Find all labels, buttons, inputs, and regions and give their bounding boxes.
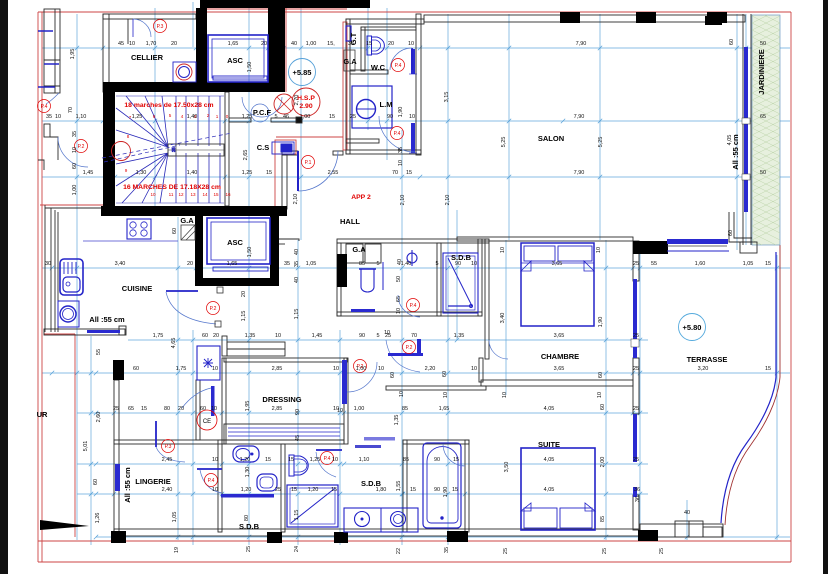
svg-text:2,85: 2,85 xyxy=(272,366,283,372)
svg-text:10: 10 xyxy=(384,330,390,336)
svg-text:90: 90 xyxy=(387,114,393,120)
svg-text:25: 25 xyxy=(246,546,252,552)
svg-text:22: 22 xyxy=(396,548,402,554)
svg-text:10: 10 xyxy=(72,147,78,153)
svg-text:15: 15 xyxy=(265,457,271,463)
svg-text:4,05: 4,05 xyxy=(544,406,555,412)
svg-text:1,30: 1,30 xyxy=(245,467,251,478)
svg-text:20: 20 xyxy=(178,406,184,412)
svg-text:2,45: 2,45 xyxy=(162,457,173,463)
svg-text:10: 10 xyxy=(332,457,338,463)
svg-text:2,00: 2,00 xyxy=(600,457,606,468)
svg-text:P.4: P.4 xyxy=(41,104,48,110)
svg-text:36: 36 xyxy=(635,496,641,502)
svg-text:60: 60 xyxy=(172,228,178,234)
svg-text:G.A: G.A xyxy=(343,57,357,66)
svg-text:4,05: 4,05 xyxy=(544,457,555,463)
svg-text:CE: CE xyxy=(203,419,211,425)
svg-text:10: 10 xyxy=(471,261,477,267)
svg-text:5: 5 xyxy=(169,113,172,118)
svg-text:10: 10 xyxy=(333,366,339,372)
svg-text:10: 10 xyxy=(471,366,477,372)
svg-text:90: 90 xyxy=(295,409,301,415)
svg-text:5: 5 xyxy=(274,114,277,120)
svg-text:46: 46 xyxy=(283,114,289,120)
svg-text:P.3: P.3 xyxy=(157,24,164,30)
svg-text:1,95: 1,95 xyxy=(245,401,251,412)
svg-text:1,20: 1,20 xyxy=(240,457,251,463)
svg-text:JARDINIERE: JARDINIERE xyxy=(757,49,766,94)
svg-text:40: 40 xyxy=(397,259,403,265)
svg-text:DRESSING: DRESSING xyxy=(262,395,301,404)
svg-text:10: 10 xyxy=(398,160,404,166)
svg-text:90: 90 xyxy=(455,261,461,267)
svg-text:2,60: 2,60 xyxy=(96,412,102,423)
svg-text:15: 15 xyxy=(366,41,372,47)
svg-text:1,90: 1,90 xyxy=(398,107,404,118)
svg-text:1,25: 1,25 xyxy=(242,170,253,176)
svg-text:9: 9 xyxy=(125,168,128,173)
svg-text:1,65: 1,65 xyxy=(228,41,239,47)
svg-text:P.2: P.2 xyxy=(210,306,217,312)
svg-text:2,40: 2,40 xyxy=(162,487,173,493)
svg-text:CHAMBRE: CHAMBRE xyxy=(541,352,579,361)
svg-text:85: 85 xyxy=(359,261,365,267)
svg-text:80: 80 xyxy=(244,515,250,521)
svg-text:1,15: 1,15 xyxy=(294,510,300,521)
svg-text:1,20: 1,20 xyxy=(308,487,319,493)
svg-text:1,05: 1,05 xyxy=(306,261,317,267)
svg-text:2,85: 2,85 xyxy=(272,406,283,412)
svg-text:10: 10 xyxy=(500,247,506,253)
svg-text:1,45: 1,45 xyxy=(312,333,323,339)
svg-text:10: 10 xyxy=(443,392,449,398)
svg-text:1,80: 1,80 xyxy=(376,487,387,493)
svg-text:1,75: 1,75 xyxy=(176,366,187,372)
svg-text:6: 6 xyxy=(153,114,156,119)
svg-text:3,40: 3,40 xyxy=(500,313,506,324)
svg-text:35: 35 xyxy=(284,261,290,267)
svg-text:25: 25 xyxy=(633,406,639,412)
svg-text:15: 15 xyxy=(453,457,459,463)
svg-text:15: 15 xyxy=(266,170,272,176)
svg-text:CUISINE: CUISINE xyxy=(122,284,152,293)
svg-text:5,25: 5,25 xyxy=(598,137,604,148)
svg-text:60: 60 xyxy=(93,479,99,485)
svg-text:60: 60 xyxy=(72,163,78,169)
svg-text:15: 15 xyxy=(329,114,335,120)
svg-text:1,30: 1,30 xyxy=(136,170,147,176)
svg-text:SUITE: SUITE xyxy=(538,440,560,449)
svg-text:1,20: 1,20 xyxy=(241,487,252,493)
svg-text:3,15: 3,15 xyxy=(444,92,450,103)
svg-text:2: 2 xyxy=(207,113,210,118)
svg-text:70: 70 xyxy=(392,170,398,176)
svg-text:5,25: 5,25 xyxy=(501,137,507,148)
svg-text:TERRASSE: TERRASSE xyxy=(687,355,728,364)
svg-text:80: 80 xyxy=(164,406,170,412)
svg-text:15: 15 xyxy=(288,457,294,463)
svg-text:7,90: 7,90 xyxy=(574,114,585,120)
svg-text:4,65: 4,65 xyxy=(171,338,177,349)
svg-text:30: 30 xyxy=(45,261,51,267)
svg-text:1,90: 1,90 xyxy=(443,487,449,498)
svg-text:16 MARCHES DE 17.18X28 cm: 16 MARCHES DE 17.18X28 cm xyxy=(123,184,221,191)
svg-text:35: 35 xyxy=(294,261,300,267)
svg-text:1,15: 1,15 xyxy=(241,311,247,322)
svg-text:P.4: P.4 xyxy=(410,303,417,309)
svg-text:25: 25 xyxy=(633,457,639,463)
svg-text:8: 8 xyxy=(127,134,130,139)
svg-text:All :55 cm: All :55 cm xyxy=(89,315,125,324)
svg-text:2,10: 2,10 xyxy=(400,195,406,206)
svg-text:LINGERIE: LINGERIE xyxy=(135,477,170,486)
svg-text:1,50: 1,50 xyxy=(247,247,253,258)
svg-text:1,25: 1,25 xyxy=(310,457,321,463)
svg-text:All :55 cm: All :55 cm xyxy=(123,467,132,503)
svg-text:90: 90 xyxy=(434,457,440,463)
svg-text:70: 70 xyxy=(68,107,74,113)
svg-text:4,05: 4,05 xyxy=(727,135,733,146)
svg-text:7,90: 7,90 xyxy=(574,170,585,176)
svg-text:11: 11 xyxy=(169,192,174,197)
svg-text:65: 65 xyxy=(128,406,134,412)
svg-text:60: 60 xyxy=(729,39,735,45)
svg-text:ASC: ASC xyxy=(227,56,243,65)
svg-text:P.1: P.1 xyxy=(305,160,312,166)
svg-text:55: 55 xyxy=(651,261,657,267)
svg-text:25: 25 xyxy=(633,366,639,372)
svg-text:10: 10 xyxy=(150,192,156,197)
svg-text:1,65: 1,65 xyxy=(227,261,238,267)
svg-text:20: 20 xyxy=(261,41,267,47)
svg-text:+5.85: +5.85 xyxy=(293,68,312,77)
svg-text:50: 50 xyxy=(396,276,402,282)
svg-text:1,35: 1,35 xyxy=(245,333,256,339)
svg-text:15: 15 xyxy=(291,487,297,493)
svg-text:40: 40 xyxy=(684,510,690,516)
svg-text:APP 2: APP 2 xyxy=(351,194,371,201)
svg-text:20: 20 xyxy=(213,333,219,339)
svg-text:10: 10 xyxy=(212,487,218,493)
svg-text:1,95: 1,95 xyxy=(70,49,76,60)
svg-text:25: 25 xyxy=(113,406,119,412)
svg-text:1,00: 1,00 xyxy=(306,41,317,47)
svg-text:15: 15 xyxy=(765,366,771,372)
svg-text:55: 55 xyxy=(96,349,102,355)
svg-text:15: 15 xyxy=(452,487,458,493)
svg-text:16: 16 xyxy=(225,192,231,197)
svg-text:12: 12 xyxy=(178,192,184,197)
svg-text:W.C: W.C xyxy=(371,63,386,72)
svg-text:10: 10 xyxy=(211,406,217,412)
svg-text:20: 20 xyxy=(241,291,247,297)
svg-text:15: 15 xyxy=(141,406,147,412)
svg-text:3,40: 3,40 xyxy=(115,261,126,267)
svg-text:50: 50 xyxy=(760,41,766,47)
svg-text:1,00: 1,00 xyxy=(72,185,78,196)
svg-text:3,65: 3,65 xyxy=(552,261,563,267)
svg-text:10: 10 xyxy=(378,366,384,372)
svg-text:20: 20 xyxy=(187,261,193,267)
svg-text:P.2: P.2 xyxy=(78,144,85,150)
svg-text:1,26: 1,26 xyxy=(95,513,101,524)
svg-text:35: 35 xyxy=(398,147,404,153)
svg-text:36: 36 xyxy=(634,487,640,493)
svg-text:P.4: P.4 xyxy=(394,131,401,137)
svg-text:10: 10 xyxy=(275,333,281,339)
svg-text:25: 25 xyxy=(171,147,176,152)
svg-text:1,50: 1,50 xyxy=(247,62,253,73)
svg-text:5: 5 xyxy=(376,333,379,339)
svg-text:85: 85 xyxy=(402,406,408,412)
svg-text:2,10: 2,10 xyxy=(293,194,299,205)
svg-text:2,55: 2,55 xyxy=(328,170,339,176)
svg-text:1,15: 1,15 xyxy=(294,309,300,320)
svg-text:1,55: 1,55 xyxy=(396,481,402,492)
svg-text:10: 10 xyxy=(337,408,343,414)
svg-text:4,05: 4,05 xyxy=(544,487,555,493)
svg-text:P.4: P.4 xyxy=(395,63,402,69)
svg-text:1,65: 1,65 xyxy=(439,406,450,412)
svg-text:25: 25 xyxy=(659,548,665,554)
svg-text:HALL: HALL xyxy=(340,217,360,226)
svg-text:15: 15 xyxy=(765,261,771,267)
svg-text:25: 25 xyxy=(633,333,639,339)
svg-text:10: 10 xyxy=(396,308,402,314)
svg-text:35: 35 xyxy=(72,131,78,137)
svg-text:10: 10 xyxy=(408,41,414,47)
svg-text:ASC: ASC xyxy=(227,238,243,247)
svg-text:24: 24 xyxy=(294,546,300,552)
svg-text:1,25: 1,25 xyxy=(242,114,253,120)
svg-text:10: 10 xyxy=(596,247,602,253)
svg-text:25: 25 xyxy=(633,261,639,267)
svg-text:85: 85 xyxy=(600,516,606,522)
svg-text:1,00: 1,00 xyxy=(354,406,365,412)
svg-text:1,05: 1,05 xyxy=(743,261,754,267)
svg-text:1,45: 1,45 xyxy=(83,170,94,176)
svg-text:35: 35 xyxy=(348,41,354,47)
svg-text:1,35: 1,35 xyxy=(394,415,400,426)
svg-text:5: 5 xyxy=(376,261,379,267)
svg-text:UR: UR xyxy=(37,410,48,419)
svg-text:14: 14 xyxy=(202,192,208,197)
svg-text:60: 60 xyxy=(600,404,606,410)
svg-text:2,10: 2,10 xyxy=(445,195,451,206)
svg-text:10: 10 xyxy=(212,366,218,372)
svg-text:15: 15 xyxy=(410,487,416,493)
svg-text:65: 65 xyxy=(396,296,402,302)
svg-text:10: 10 xyxy=(129,41,135,47)
svg-text:1,00: 1,00 xyxy=(300,114,311,120)
svg-text:2,20: 2,20 xyxy=(425,366,436,372)
svg-text:60: 60 xyxy=(598,372,604,378)
svg-text:15: 15 xyxy=(331,487,337,493)
svg-text:3,65: 3,65 xyxy=(554,333,565,339)
svg-text:3,20: 3,20 xyxy=(698,366,709,372)
svg-text:45: 45 xyxy=(295,435,301,441)
svg-text:45: 45 xyxy=(118,41,124,47)
svg-text:5: 5 xyxy=(435,261,438,267)
svg-text:10: 10 xyxy=(597,392,603,398)
svg-text:70: 70 xyxy=(411,333,417,339)
svg-text:10: 10 xyxy=(409,114,415,120)
svg-text:G.A: G.A xyxy=(352,245,366,254)
svg-text:P.2: P.2 xyxy=(406,345,413,351)
svg-text:20: 20 xyxy=(388,41,394,47)
svg-text:1,00: 1,00 xyxy=(356,366,367,372)
svg-text:85: 85 xyxy=(403,457,409,463)
svg-text:+5.80: +5.80 xyxy=(683,323,702,332)
svg-text:L.M: L.M xyxy=(380,100,393,109)
svg-text:1,40: 1,40 xyxy=(187,170,198,176)
svg-text:SALON: SALON xyxy=(538,134,564,143)
svg-text:1,40: 1,40 xyxy=(187,114,198,120)
svg-text:65: 65 xyxy=(760,114,766,120)
svg-text:3,65: 3,65 xyxy=(554,366,565,372)
svg-text:60: 60 xyxy=(200,406,206,412)
svg-text:10: 10 xyxy=(55,114,61,120)
svg-text:20: 20 xyxy=(171,41,177,47)
svg-text:1,10: 1,10 xyxy=(76,114,87,120)
svg-text:1,10: 1,10 xyxy=(359,457,370,463)
svg-text:P.C.F: P.C.F xyxy=(253,108,272,117)
svg-text:1,75: 1,75 xyxy=(153,333,164,339)
svg-text:1: 1 xyxy=(216,114,219,119)
svg-text:25: 25 xyxy=(275,487,281,493)
svg-text:CELLIER: CELLIER xyxy=(131,53,164,62)
svg-text:C.S: C.S xyxy=(257,143,270,152)
svg-text:35: 35 xyxy=(444,547,450,553)
svg-text:40: 40 xyxy=(294,277,300,283)
svg-text:15: 15 xyxy=(213,192,219,197)
svg-text:50: 50 xyxy=(760,170,766,176)
svg-text:25: 25 xyxy=(503,548,509,554)
svg-text:2.90: 2.90 xyxy=(299,103,312,110)
svg-text:S.D.B: S.D.B xyxy=(239,522,260,531)
svg-text:7,90: 7,90 xyxy=(576,41,587,47)
svg-text:0: 0 xyxy=(226,114,229,119)
svg-text:60: 60 xyxy=(202,333,208,339)
svg-text:P.3: P.3 xyxy=(165,444,172,450)
svg-text:2,70: 2,70 xyxy=(294,95,300,106)
svg-text:40: 40 xyxy=(294,249,300,255)
svg-text:35: 35 xyxy=(46,114,52,120)
svg-text:60: 60 xyxy=(728,230,734,236)
svg-text:10: 10 xyxy=(399,391,405,397)
svg-text:25: 25 xyxy=(350,114,356,120)
svg-text:60: 60 xyxy=(390,372,396,378)
svg-text:G.A: G.A xyxy=(180,216,194,225)
svg-text:P.4: P.4 xyxy=(208,478,215,484)
svg-text:90: 90 xyxy=(359,333,365,339)
svg-text:25: 25 xyxy=(602,548,608,554)
svg-text:4: 4 xyxy=(181,114,184,119)
svg-text:13: 13 xyxy=(190,192,196,197)
svg-text:10: 10 xyxy=(212,457,218,463)
svg-text:5,01: 5,01 xyxy=(83,441,89,452)
svg-text:18 marches de 17.50x28 cm: 18 marches de 17.50x28 cm xyxy=(124,102,213,109)
svg-text:90: 90 xyxy=(434,487,440,493)
svg-text:1,90: 1,90 xyxy=(598,317,604,328)
svg-text:3,50: 3,50 xyxy=(504,462,510,473)
svg-text:40: 40 xyxy=(291,41,297,47)
svg-text:1,35: 1,35 xyxy=(454,333,465,339)
svg-text:1,60: 1,60 xyxy=(695,261,706,267)
svg-text:1,25: 1,25 xyxy=(132,114,143,120)
svg-text:15: 15 xyxy=(406,170,412,176)
svg-text:60: 60 xyxy=(442,371,448,377)
svg-text:60: 60 xyxy=(133,366,139,372)
svg-text:1,05: 1,05 xyxy=(172,512,178,523)
svg-text:P.4: P.4 xyxy=(324,456,331,462)
svg-text:15,: 15, xyxy=(327,41,335,47)
svg-text:1,70: 1,70 xyxy=(146,41,157,47)
svg-text:19: 19 xyxy=(174,547,180,553)
svg-text:10: 10 xyxy=(502,392,508,398)
svg-text:2,65: 2,65 xyxy=(243,150,249,161)
